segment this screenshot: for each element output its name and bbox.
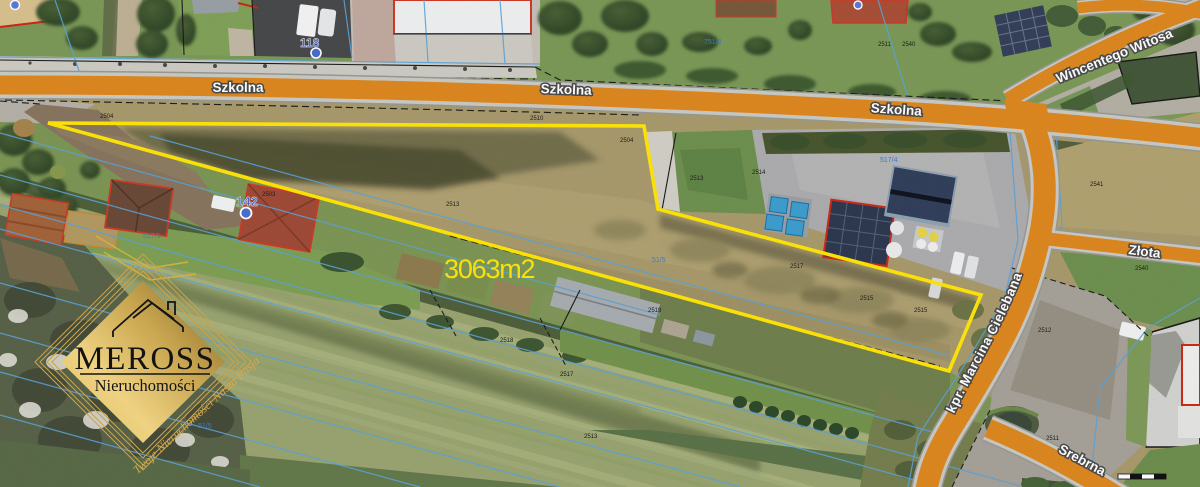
svg-text:Nieruchomości: Nieruchomości (95, 376, 196, 395)
svg-text:MEROSS: MEROSS (74, 341, 215, 377)
